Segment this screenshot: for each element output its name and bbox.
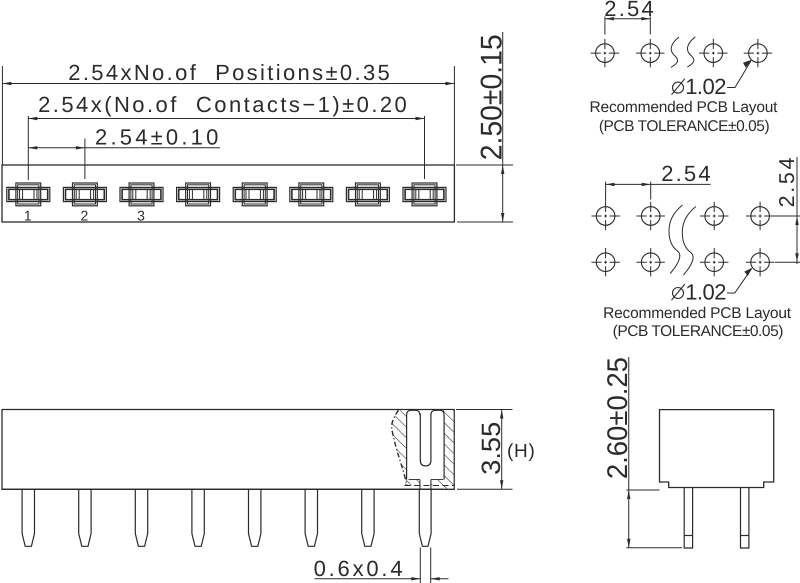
svg-text:1: 1 — [24, 208, 32, 224]
svg-text:1.02: 1.02 — [685, 74, 726, 99]
svg-text:2: 2 — [81, 208, 89, 224]
svg-text:2.60±0.25: 2.60±0.25 — [602, 357, 634, 479]
svg-text:2.54±0.10: 2.54±0.10 — [95, 124, 222, 149]
svg-text:Recommended PCB Layout: Recommended PCB Layout — [603, 305, 792, 322]
svg-text:1.02: 1.02 — [685, 279, 726, 304]
svg-text:(PCB TOLERANCE±0.05): (PCB TOLERANCE±0.05) — [613, 323, 784, 340]
svg-text:2.54: 2.54 — [775, 155, 799, 208]
svg-text:2.54: 2.54 — [661, 161, 713, 186]
svg-text:2.54: 2.54 — [604, 0, 656, 21]
svg-text:(PCB TOLERANCE±0.05): (PCB TOLERANCE±0.05) — [599, 118, 770, 135]
svg-text:2.50±0.15: 2.50±0.15 — [476, 34, 509, 160]
svg-text:2.54x(No.of Contacts−1)±0.20: 2.54x(No.of Contacts−1)±0.20 — [38, 92, 409, 117]
svg-text:3.55: 3.55 — [476, 422, 506, 475]
svg-text:2.54xNo.of Positions±0.35: 2.54xNo.of Positions±0.35 — [68, 60, 392, 85]
svg-text:Recommended PCB Layout: Recommended PCB Layout — [590, 99, 779, 116]
svg-text:(H): (H) — [507, 441, 535, 462]
svg-text:0.6x0.4: 0.6x0.4 — [314, 556, 406, 581]
svg-text:3: 3 — [137, 208, 145, 224]
